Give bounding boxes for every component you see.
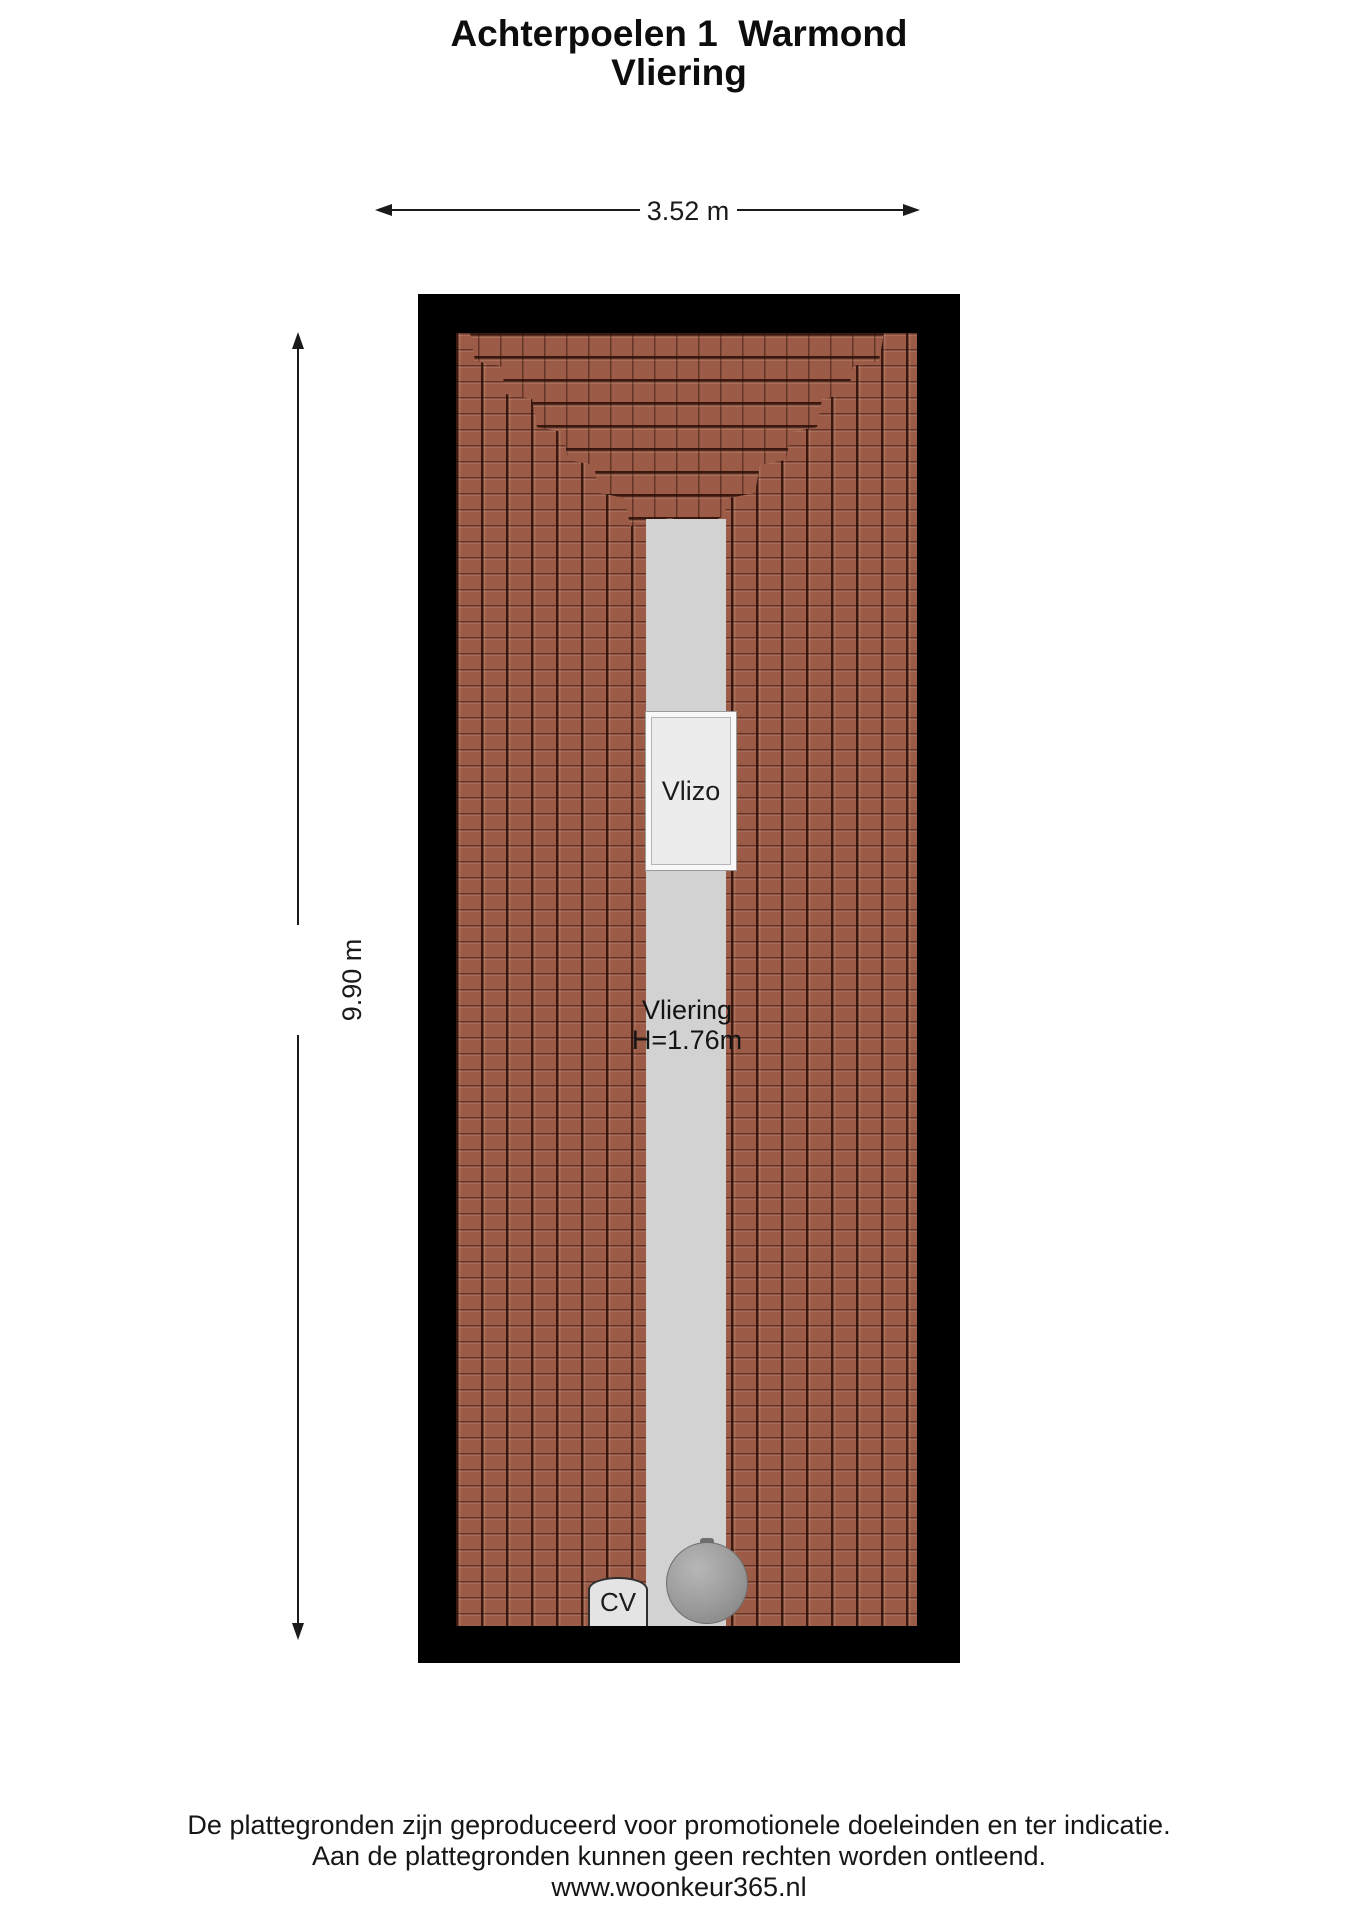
dimension-line <box>737 209 905 211</box>
disclaimer-line-2: Aan de plattegronden kunnen geen rechten… <box>0 1841 1358 1872</box>
vlizo-hatch: Vlizo <box>646 712 736 870</box>
roof-hip-slope <box>456 333 917 533</box>
title-address: Achterpoelen 1 Warmond <box>0 14 1358 53</box>
room-height-note: H=1.76m <box>567 1025 807 1055</box>
cv-unit-label: CV <box>600 1587 636 1618</box>
footer-disclaimer: De plattegronden zijn geproduceerd voor … <box>0 1810 1358 1903</box>
width-dimension-label: 3.52 m <box>628 196 748 227</box>
attic-floor-strip <box>646 519 726 1626</box>
cv-unit: CV <box>588 1577 648 1626</box>
room-name: Vliering <box>567 995 807 1025</box>
disclaimer-line-1: De plattegronden zijn geproduceerd voor … <box>0 1810 1358 1841</box>
dimension-arrow-right-icon <box>903 204 920 216</box>
room-label: Vliering H=1.76m <box>567 995 807 1055</box>
floor-plan: Vlizo Vliering H=1.76m CV <box>418 294 960 1663</box>
page-title: Achterpoelen 1 Warmond Vliering <box>0 14 1358 92</box>
roof-tiles: Vlizo Vliering H=1.76m CV <box>456 333 917 1626</box>
footer-website: www.woonkeur365.nl <box>0 1872 1358 1903</box>
title-floor-name: Vliering <box>0 53 1358 92</box>
dimension-line <box>390 209 640 211</box>
dimension-arrow-down-icon <box>292 1623 304 1640</box>
dimension-line <box>297 347 299 925</box>
height-dimension-label: 9.90 m <box>337 920 367 1040</box>
dimension-line <box>297 1035 299 1625</box>
boiler-tank <box>666 1542 748 1624</box>
vlizo-hatch-label: Vlizo <box>662 776 721 807</box>
